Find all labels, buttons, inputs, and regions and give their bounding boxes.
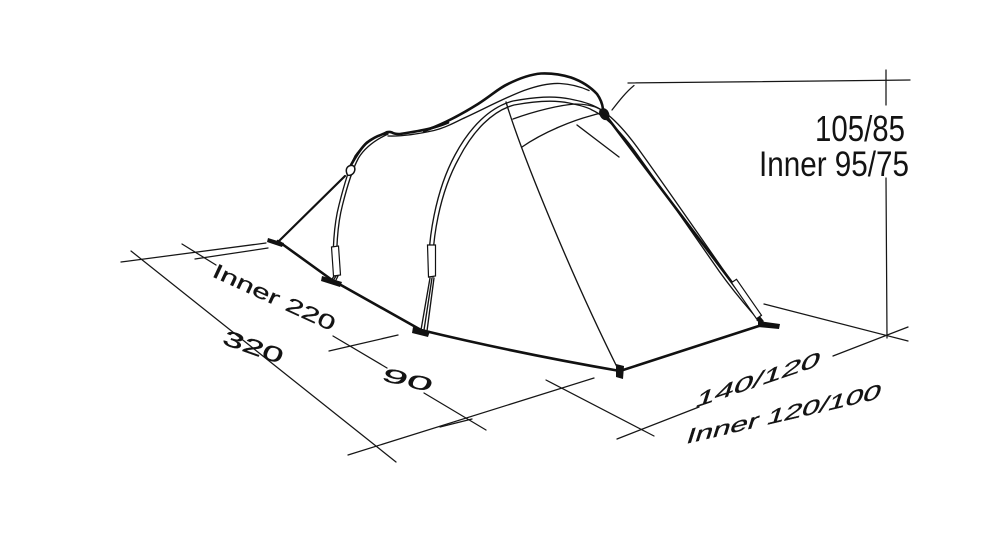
svg-text:105/85: 105/85 (815, 108, 905, 149)
svg-text:Inner 95/75: Inner 95/75 (759, 145, 909, 184)
